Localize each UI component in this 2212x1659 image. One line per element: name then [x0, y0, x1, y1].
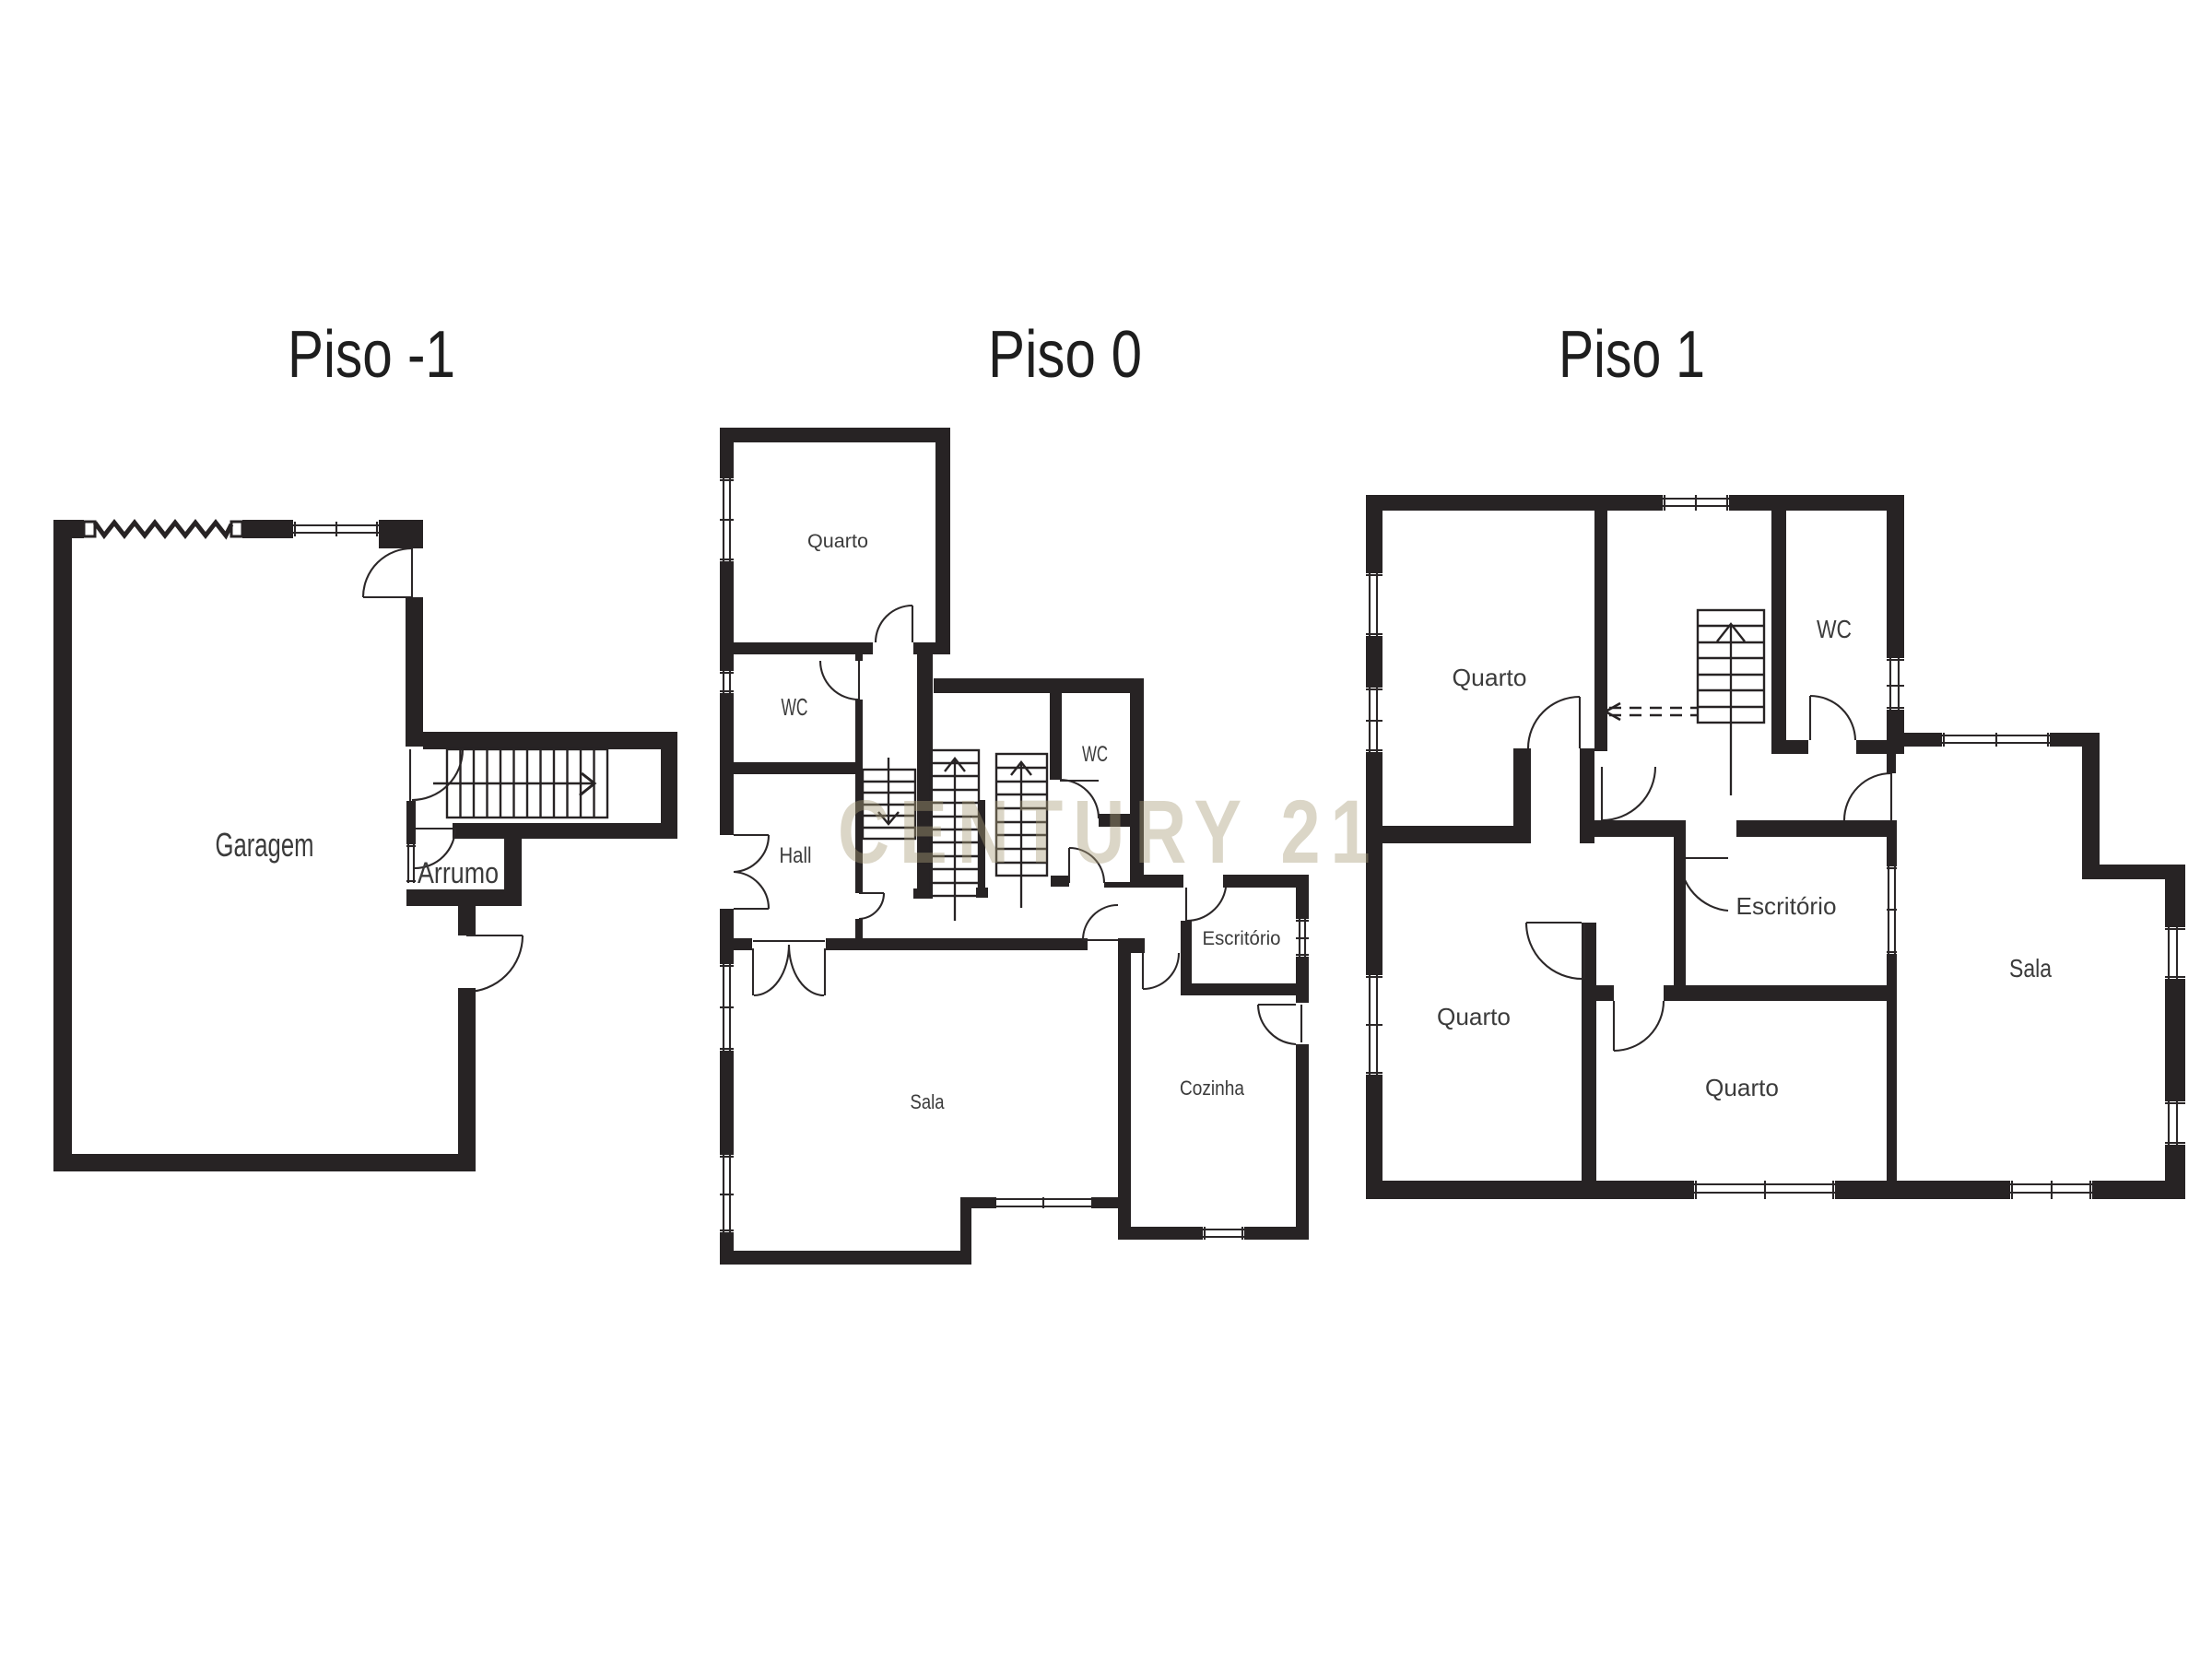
svg-text:Piso 1: Piso 1 [1559, 318, 1705, 392]
svg-text:Hall: Hall [780, 843, 812, 868]
svg-text:CENTURY 21: CENTURY 21 [838, 782, 1381, 882]
svg-text:Quarto: Quarto [1453, 664, 1527, 691]
svg-text:Quarto: Quarto [807, 531, 868, 552]
svg-text:Garagem: Garagem [216, 826, 314, 864]
svg-text:WC: WC [1817, 615, 1852, 643]
svg-text:Quarto: Quarto [1705, 1074, 1779, 1101]
svg-text:Escritório: Escritório [1203, 928, 1281, 949]
svg-text:Cozinha: Cozinha [1180, 1077, 1245, 1100]
svg-text:Arrumo: Arrumo [418, 856, 499, 889]
svg-text:WC: WC [1082, 742, 1108, 767]
svg-text:Sala: Sala [911, 1090, 946, 1113]
svg-text:Quarto: Quarto [1437, 1003, 1511, 1030]
svg-text:Sala: Sala [2009, 954, 2052, 982]
svg-text:WC: WC [782, 693, 808, 721]
svg-text:Piso -1: Piso -1 [288, 318, 455, 392]
svg-text:Piso 0: Piso 0 [988, 318, 1142, 392]
svg-text:Escritório: Escritório [1736, 892, 1837, 920]
